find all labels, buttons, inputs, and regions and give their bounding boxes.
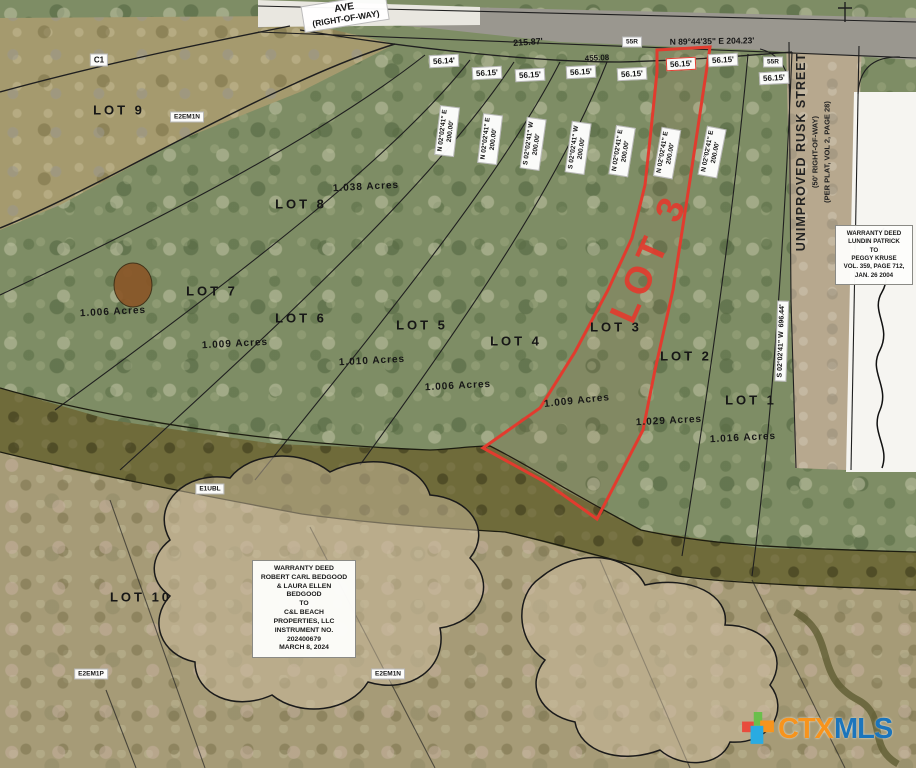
wetland-code-bottom-center: E2EM1N — [371, 669, 405, 680]
frontage-dim-label: 56.15' — [566, 65, 597, 80]
deed-line: C&L BEACH — [255, 609, 353, 618]
station-label-a: 55R — [622, 37, 642, 48]
lot-2-label: LOT 2 — [660, 349, 712, 364]
logo-mls-text: MLS — [834, 713, 892, 746]
deed-line: WARRANTY DEED — [255, 565, 353, 574]
lot-6-label: LOT 6 — [275, 311, 327, 326]
frontage-dim-label: 56.15' — [515, 68, 546, 83]
deed-line: JAN. 26 2004 — [838, 272, 910, 280]
curve-label-c1: C1 — [90, 54, 108, 67]
frontage-dim-label: 56.15' — [759, 71, 790, 86]
deed-line: INSTRUMENT NO. — [255, 627, 353, 636]
logo-ctx-text: CTX — [778, 713, 833, 746]
wetland-code-top: E2EM1N — [170, 112, 204, 123]
rusk-street-row-label: (50' RIGHT-OF-WAY) — [811, 116, 820, 188]
deed-line: VOL. 359, PAGE 712, — [838, 263, 910, 271]
lot-4-label: LOT 4 — [490, 334, 542, 349]
road-bearing-label: N 89°44'35" E 204.23' — [670, 35, 755, 46]
deed-line: TO — [255, 600, 353, 609]
warranty-deed-note-center: WARRANTY DEED ROBERT CARL BEDGOOD & LAUR… — [252, 560, 356, 658]
lot-9-label: LOT 9 — [93, 103, 145, 118]
station-label-b: 55R — [763, 57, 783, 68]
frontage-dim-label: 56.15' — [708, 53, 739, 68]
rusk-street-plat-note: (PER PLAT, VOL 2, PAGE 28) — [823, 101, 832, 203]
wetland-code-middle: E1UBL — [195, 484, 224, 495]
burn-patch — [114, 263, 152, 307]
lot-8-label: LOT 8 — [275, 197, 327, 212]
ctxmls-logo: CTXMLS — [742, 712, 892, 746]
deed-line: BEDGOOD — [255, 591, 353, 600]
frontage-dim-label: 56.15' — [617, 67, 648, 82]
texas-icon — [742, 712, 774, 746]
plat-map-screenshot: AVE (RIGHT-OF-WAY) C1 215.87' 455.08 N 8… — [0, 0, 916, 768]
deed-line: WARRANTY DEED — [838, 230, 910, 238]
frontage-dim-label-lot3: 56.15' — [666, 57, 697, 72]
deed-line: 202400679 — [255, 636, 353, 645]
bearing-direction: S 02°02'41" W — [777, 331, 786, 378]
deed-line: MARCH 8, 2024 — [255, 644, 353, 653]
lot-1-label: LOT 1 — [725, 393, 777, 408]
frontage-dim-label: 56.15' — [472, 66, 503, 81]
lot-5-label: LOT 5 — [396, 318, 448, 333]
deed-line: PEGGY KRUSE — [838, 255, 910, 263]
lot-10-label: LOT 10 — [110, 590, 172, 605]
deed-line: PROPERTIES, LLC — [255, 618, 353, 627]
lot3-highlight-outline — [483, 47, 710, 519]
road-dimension-215: 215.87' — [513, 36, 543, 48]
bearing-distance: 696.44' — [778, 304, 786, 327]
deed-line: LUNDIN PATRICK — [838, 238, 910, 246]
frontage-dim-label: 56.14' — [429, 54, 460, 69]
deed-line: & LAURA ELLEN — [255, 583, 353, 592]
rusk-street-name-label: UNIMPROVED RUSK STREET — [794, 53, 808, 251]
lot-7-label: LOT 7 — [186, 284, 238, 299]
wetland-code-bottom-left: E2EM1P — [74, 669, 108, 680]
road-dimension-455: 455.08 — [585, 53, 610, 63]
deed-line: TO — [838, 247, 910, 255]
deed-line: ROBERT CARL BEDGOOD — [255, 574, 353, 583]
warranty-deed-note-right: WARRANTY DEED LUNDIN PATRICK TO PEGGY KR… — [835, 225, 913, 285]
